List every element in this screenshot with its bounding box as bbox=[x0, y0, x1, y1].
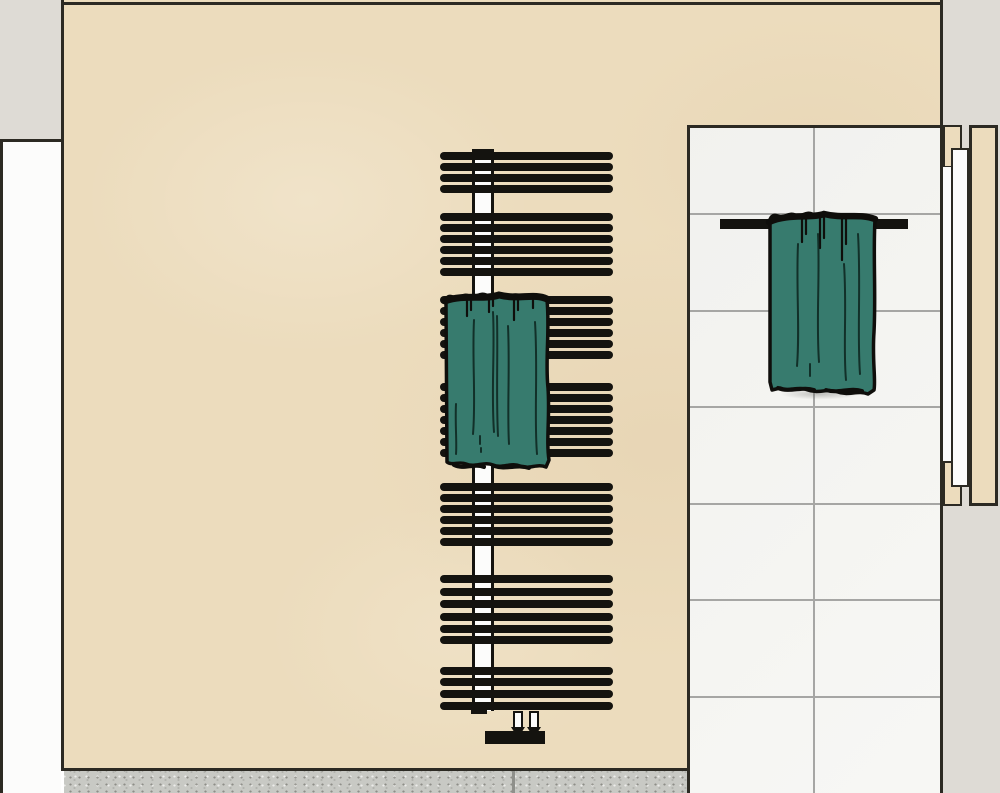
radiator-rung bbox=[440, 213, 613, 221]
radiator-rung bbox=[440, 163, 613, 171]
radiator-rung bbox=[440, 600, 613, 608]
radiator-rung bbox=[440, 636, 613, 644]
radiator-rung bbox=[440, 224, 613, 232]
radiator-rung bbox=[440, 494, 613, 502]
radiator-valve-manifold bbox=[485, 731, 545, 744]
radiator-rung bbox=[440, 625, 613, 633]
radiator-rung bbox=[440, 483, 613, 491]
radiator-rung bbox=[440, 667, 613, 675]
radiator-rung bbox=[440, 702, 613, 710]
radiator-towel bbox=[434, 286, 560, 480]
radiator-rung bbox=[440, 678, 613, 686]
radiator-rung bbox=[440, 235, 613, 243]
radiator-rung bbox=[440, 575, 613, 583]
radiator-rung bbox=[440, 588, 613, 596]
radiator-rung bbox=[440, 246, 613, 254]
radiator-rung bbox=[440, 257, 613, 265]
radiator-rung bbox=[440, 613, 613, 621]
radiator-rung bbox=[440, 505, 613, 513]
radiator-rung bbox=[440, 268, 613, 276]
radiator-rung bbox=[440, 152, 613, 160]
radiator-column-cap bbox=[471, 708, 487, 714]
radiator-rung bbox=[440, 516, 613, 524]
radiator-rung bbox=[440, 538, 613, 546]
radiator-rung bbox=[440, 690, 613, 698]
wall-towel bbox=[754, 204, 884, 404]
radiator-rung bbox=[440, 174, 613, 182]
radiator-rung bbox=[440, 185, 613, 193]
radiator-rung bbox=[440, 527, 613, 535]
bathroom-illustration bbox=[0, 0, 1000, 793]
